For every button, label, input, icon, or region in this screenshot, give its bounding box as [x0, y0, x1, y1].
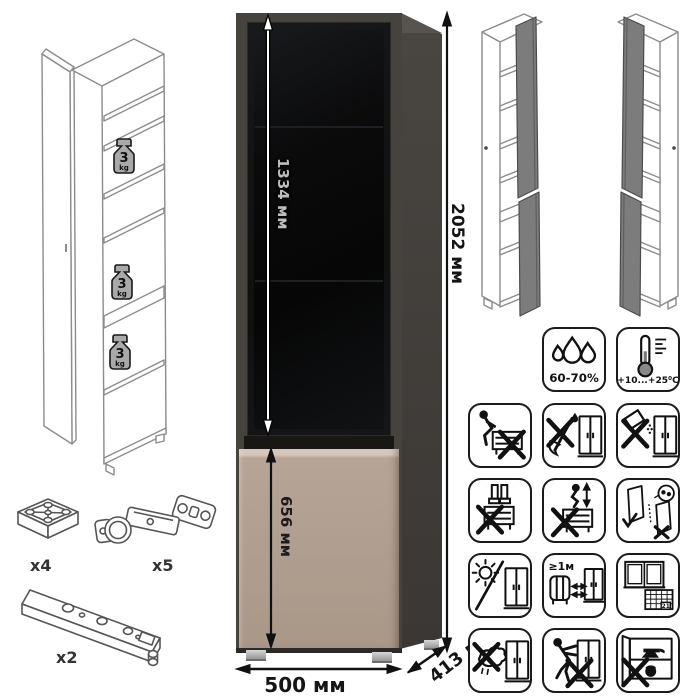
cabinet-foot — [424, 640, 439, 650]
shelf-load-badge: 3 kg — [112, 265, 132, 299]
calendar-day-label: 21 — [662, 604, 670, 610]
cabinet-front-view — [236, 13, 402, 653]
no-direct-sunlight-icon — [468, 553, 532, 618]
cabinet-top-face — [72, 39, 164, 86]
humidity-icon: 60-70% — [542, 327, 606, 392]
furniture-spec-diagram: 3 kg 3 kg 3 kg — [0, 0, 689, 700]
shelf-load-badge: 3 kg — [114, 139, 134, 173]
no-jumping-icon — [542, 478, 606, 543]
handle-hole — [672, 146, 676, 150]
no-standing-icon — [468, 478, 532, 543]
dimension-label-glass-door: 1334 мм — [274, 158, 292, 230]
heater-distance-icon: ≥1м — [542, 553, 606, 618]
door-gap — [244, 436, 394, 449]
cabinet-foot — [372, 652, 392, 663]
handle-hole — [484, 146, 488, 150]
no-sharp-tools-icon — [542, 403, 606, 468]
ventilation-schedule-icon: 21 — [616, 553, 680, 618]
load-unit: kg — [119, 164, 129, 172]
heater-distance-label: ≥1м — [549, 560, 575, 573]
hardware-mounting-rail — [20, 576, 190, 676]
cabinet-side-panel — [400, 8, 442, 653]
no-heavy-load-icon — [616, 628, 680, 693]
dimension-arrow-2052 — [443, 12, 452, 652]
temperature-label: +10...+25⁰C — [618, 376, 678, 386]
svg-text:kg: kg — [117, 290, 127, 298]
dimension-label-bottom-door: 656 мм — [277, 496, 295, 557]
open-view-left — [472, 6, 578, 318]
dimension-label-width: 500 мм — [248, 673, 362, 697]
no-wet-cleaning-icon — [468, 628, 532, 693]
hardware-hinge — [92, 478, 224, 566]
cabinet-foot — [246, 650, 266, 661]
open-door-panel — [42, 54, 72, 444]
glass-door — [247, 22, 391, 436]
temperature-icon: +10...+25⁰C — [616, 327, 680, 392]
no-pushing-icon — [542, 628, 606, 693]
humidity-label: 60-70% — [549, 371, 599, 385]
svg-text:kg: kg — [115, 360, 125, 368]
hinge-count: x5 — [152, 556, 173, 575]
hardware-foot-glide — [10, 486, 88, 556]
inner-shelf-reflection — [255, 280, 383, 282]
foot-glide-count: x4 — [30, 556, 51, 575]
rail-count: x2 — [56, 648, 77, 667]
open-view-right — [582, 6, 688, 318]
bottom-door — [239, 449, 399, 648]
no-spilling-icon — [616, 403, 680, 468]
no-sitting-icon — [468, 403, 532, 468]
door-adjustment-icon — [616, 478, 680, 543]
shelf-load-badge: 3 kg — [110, 335, 130, 369]
dimension-label-total-height: 2052 мм — [447, 203, 467, 284]
wireframe-cabinet-diagram: 3 kg 3 kg 3 kg — [6, 16, 236, 478]
inner-shelf-reflection — [255, 126, 383, 128]
